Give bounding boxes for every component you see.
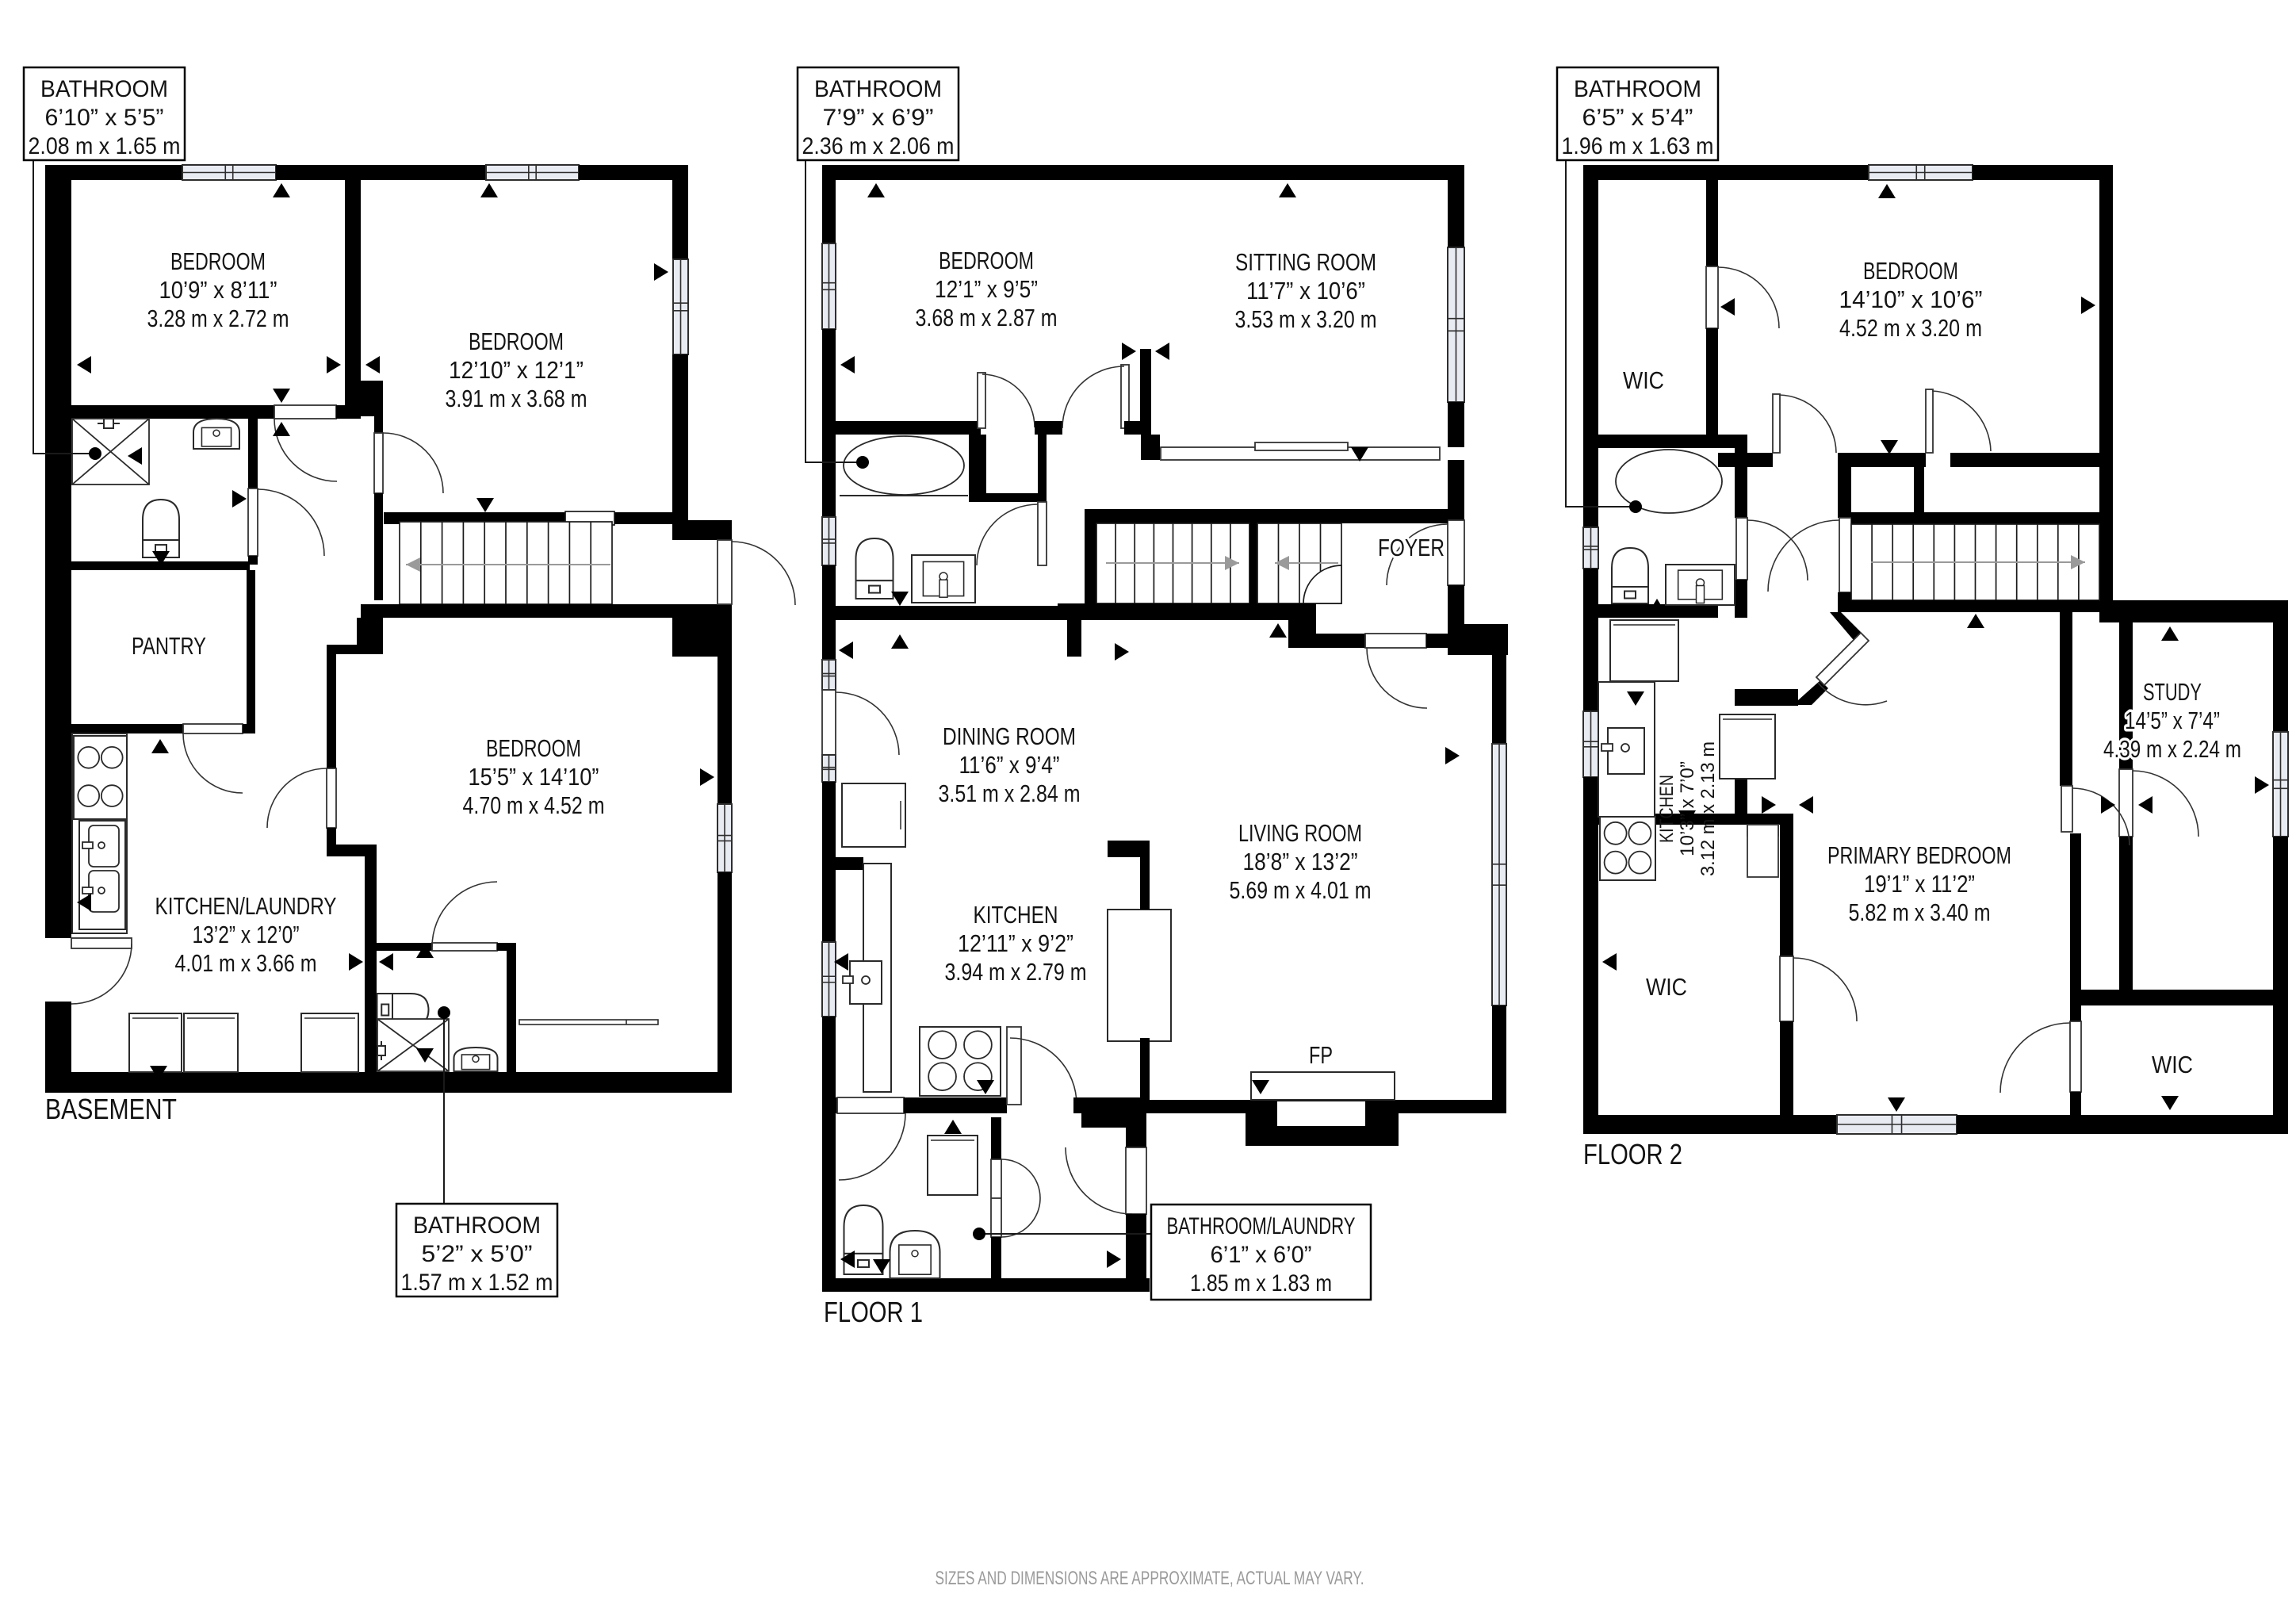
svg-text:BATHROOM7’9” x 6’9”2.36 m x 2.: BATHROOM7’9” x 6’9”2.36 m x 2.06 m	[802, 76, 955, 159]
svg-text:BATHROOM6’10” x 5’5”2.08 m x 1: BATHROOM6’10” x 5’5”2.08 m x 1.65 m	[29, 76, 181, 159]
svg-text:FLOOR 1: FLOOR 1	[824, 1296, 923, 1328]
svg-text:SIZES AND DIMENSIONS ARE APPRO: SIZES AND DIMENSIONS ARE APPROXIMATE, AC…	[936, 1568, 1364, 1589]
svg-text:FP: FP	[1309, 1041, 1333, 1069]
svg-text:BATHROOM5’2” x 5’0”1.57 m x 1.: BATHROOM5’2” x 5’0”1.57 m x 1.52 m	[401, 1212, 553, 1296]
svg-text:PANTRY: PANTRY	[132, 632, 206, 660]
svg-text:FOYER: FOYER	[1378, 534, 1445, 561]
svg-text:BATHROOM6’5” x 5’4”1.96 m x 1.: BATHROOM6’5” x 5’4”1.96 m x 1.63 m	[1562, 76, 1714, 159]
svg-text:DINING ROOM11’6” x 9’4”3.51 m: DINING ROOM11’6” x 9’4”3.51 m x 2.84 m	[939, 722, 1081, 807]
svg-text:LIVING ROOM18’8” x 13’2”5.69 m: LIVING ROOM18’8” x 13’2”5.69 m x 4.01 m	[1230, 819, 1372, 904]
svg-text:WIC: WIC	[1646, 973, 1687, 1001]
svg-text:WIC: WIC	[1623, 366, 1664, 394]
svg-text:BASEMENT: BASEMENT	[45, 1093, 177, 1125]
svg-text:FLOOR 2: FLOOR 2	[1583, 1138, 1682, 1170]
svg-text:SITTING ROOM11’7” x 10’6”3.53: SITTING ROOM11’7” x 10’6”3.53 m x 3.20 m	[1235, 248, 1377, 333]
svg-text:WIC: WIC	[2152, 1051, 2193, 1078]
